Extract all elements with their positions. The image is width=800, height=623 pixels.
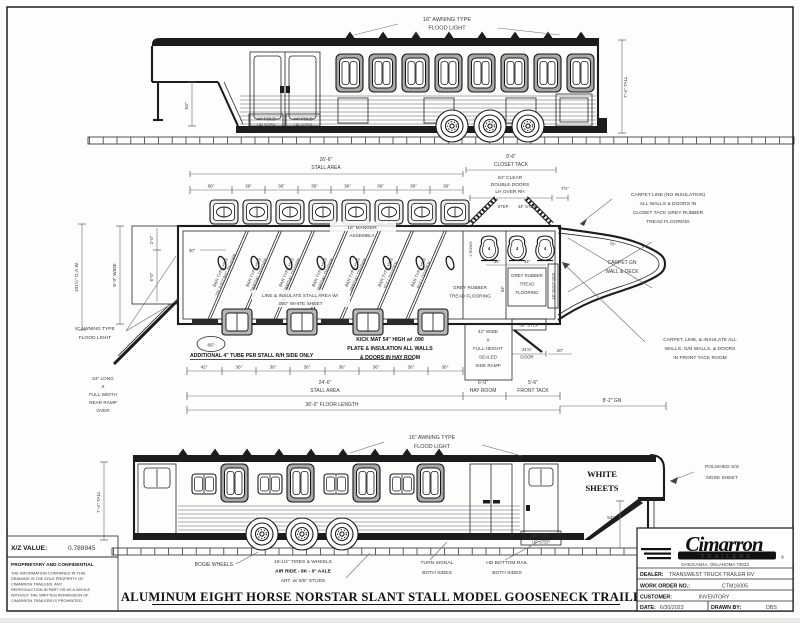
svg-text:36": 36" — [245, 184, 252, 189]
svg-text:36": 36" — [373, 365, 380, 370]
gn-drop-dim: 53" — [607, 515, 614, 520]
ramp-open-inner — [118, 304, 170, 356]
tires-note: 19-1/2" TIRES & WHEELS — [274, 559, 333, 565]
svg-text:.050" WHITE SHEET: .050" WHITE SHEET — [277, 301, 322, 307]
ramp-open — [114, 300, 178, 364]
svg-text:PLATE & INSULATION ALL WALLS: PLATE & INSULATION ALL WALLS — [347, 346, 433, 352]
svg-text:REPRODUCTION IN PART OR AS A W: REPRODUCTION IN PART OR AS A WHOLE — [11, 587, 91, 592]
wall-hatch — [321, 319, 349, 325]
svg-text:SEALED: SEALED — [479, 355, 498, 360]
svg-text:SIDE RAMP: SIDE RAMP — [475, 363, 500, 368]
svg-text:DRAWING IS THE SOLE PROPERTY O: DRAWING IS THE SOLE PROPERTY OF — [11, 576, 84, 581]
svg-text:DOOR: DOOR — [520, 355, 533, 360]
stall-windows-row — [336, 54, 594, 92]
floor-length-dim: 36'-0" FLOOR LENGTH — [305, 402, 358, 408]
stall-area-bottom-dim: 24'-6" — [319, 380, 332, 386]
svg-text:FLOORING: FLOORING — [516, 290, 540, 295]
svg-text:X: X — [101, 384, 105, 389]
svg-text:FLOOD LIGHT: FLOOD LIGHT — [79, 335, 112, 341]
svg-text:UP STEP: UP STEP — [294, 123, 313, 128]
rear-ramp-plan — [132, 226, 178, 304]
svg-text:TREAD FLOORING: TREAD FLOORING — [449, 294, 491, 299]
gn-entry-door — [524, 464, 558, 538]
divider-label-4: BAR TYPE H&S PARTIAL DIVIDER — [310, 255, 335, 292]
width-dim: 8'-0" WIDE — [112, 263, 118, 286]
stall-area-dim: 26'-6" — [320, 157, 333, 163]
svg-text:FULL HEIGHT: FULL HEIGHT — [473, 346, 503, 351]
rear-ramp-note: 53" LONG — [92, 376, 114, 381]
svg-text:ALL WALLS & DOORS IN: ALL WALLS & DOORS IN — [640, 201, 697, 207]
plan-view: 26'-6" STALL AREA 9'-6" CLOSET TACK 66" … — [73, 154, 737, 414]
kick-mat-note: KICK MAT 54" HIGH w/ .090 — [356, 337, 424, 343]
leader — [498, 28, 560, 35]
drawn-by-value: DBS — [766, 605, 777, 611]
svg-text:36": 36" — [236, 365, 243, 370]
divider-label-3: BAR TYPE H&S PARTIAL DIVIDER — [277, 255, 302, 292]
floor-band — [134, 533, 584, 540]
manger-row — [210, 200, 469, 224]
side-ramp-note: 42" WIDE — [478, 329, 498, 334]
svg-text:IN FRONT TACK ROOM: IN FRONT TACK ROOM — [673, 355, 727, 361]
door-dim: 31¾" — [522, 347, 533, 352]
svg-text:CLOSET TACK GREY RUBBER: CLOSET TACK GREY RUBBER — [633, 210, 704, 216]
wall-hatch — [387, 319, 414, 325]
xz-value-stamp: X/Z VALUE: 0.788945 — [7, 536, 118, 557]
carpet-closet-note: CARPET LINE (NO INSULATION) — [631, 192, 706, 198]
svg-text:36" FOLD: 36" FOLD — [532, 533, 550, 538]
divider-label-5: BAR TYPE H&S PARTIAL DIVIDER — [343, 255, 368, 292]
divider-label-7: BAR TYPE H&S FULL DIVIDER — [410, 257, 433, 290]
step-label: STEP — [498, 204, 509, 209]
svg-text:WALL & DECK: WALL & DECK — [605, 269, 639, 275]
date-label: DATE: — [640, 605, 656, 611]
svg-text:WITHOUT THE WRITTEN PERMISSION: WITHOUT THE WRITTEN PERMISSION OF — [11, 593, 89, 598]
clear-doors-note: 84" CLEAR — [498, 175, 523, 181]
svg-text:FLOOD LIGHT: FLOOD LIGHT — [414, 444, 451, 450]
svg-text:WALLS, G/N WALLS, & DOORS: WALLS, G/N WALLS, & DOORS — [665, 346, 737, 352]
brand-sub: TRAILERS — [701, 554, 753, 560]
trailer-body-side — [152, 32, 607, 143]
svg-text:36": 36" — [410, 184, 417, 189]
confidential-stamp: PROPRIETARY AND CONFIDENTIAL THE INFORMA… — [7, 557, 118, 611]
svg-text:36": 36" — [304, 365, 311, 370]
flood-light-label: 16" AWNING TYPE — [409, 435, 456, 441]
svg-text:36" STEP: 36" STEP — [519, 323, 538, 328]
step-44-label: 44" STEP — [518, 204, 536, 209]
gn-drop-dim: 53" — [184, 102, 190, 109]
dim-2ft: 2'-0" — [149, 235, 154, 244]
divider-label-6: BAR TYPE H&S FULL DIVIDER — [377, 257, 400, 290]
stall-area-label: STALL AREA — [311, 165, 341, 171]
work-order-value: CTM16005 — [722, 584, 748, 590]
svg-text:44" FOLD: 44" FOLD — [293, 117, 312, 122]
svg-text:36": 36" — [443, 184, 450, 189]
dim-34a: 34" — [494, 259, 501, 264]
entry-doors — [250, 52, 320, 126]
svg-text:36": 36" — [408, 365, 415, 370]
rear-compartment-inner — [560, 98, 588, 122]
flood-light-icons — [346, 32, 586, 39]
added-tube-note: ADDITIONAL 4" TUBE PER STALL R/H SIDE ON… — [190, 353, 314, 359]
closet-tack-label: CLOSET TACK — [494, 162, 529, 168]
top-side-view: 16" AWNING TYPE FLOOD LIGHT 53" 44" FOLD… — [88, 17, 794, 144]
triple-axle-wheels — [246, 518, 358, 550]
xz-label: X/Z VALUE: — [11, 545, 47, 552]
dealer-value: TRANSWEST TRUCK TRAILER RV — [669, 572, 755, 578]
dealer-label: DEALER: — [640, 572, 664, 578]
svg-text:36": 36" — [377, 184, 384, 189]
svg-text:42": 42" — [201, 365, 208, 370]
svg-text:STALL AREA: STALL AREA — [310, 388, 340, 394]
carpet-gn-note: CARPET GN — [607, 260, 636, 266]
stall-spacing-dims: 66" 36" 36" 36" 36" 36" 36" 36" — [190, 184, 463, 195]
flood-light-label: FLOOD LIGHT — [428, 26, 466, 32]
svg-text:ART. w/ 5/8" STUDS: ART. w/ 5/8" STUDS — [281, 578, 326, 584]
svg-text:36": 36" — [339, 365, 346, 370]
rear-door — [138, 464, 176, 538]
svg-text:66": 66" — [207, 343, 214, 349]
front-tack-dim: 5'-6" — [528, 380, 538, 386]
svg-text:REAR RAMP: REAR RAMP — [89, 400, 117, 405]
leader — [354, 24, 398, 35]
svg-text:36": 36" — [311, 184, 318, 189]
height-dim: 7'-4" TALL — [96, 491, 102, 513]
dim-30: 30" — [189, 248, 196, 253]
gooseneck-underside — [638, 497, 665, 501]
dim-18: 18" — [609, 240, 617, 247]
gn-length-dim: 8'-2" GN — [603, 398, 622, 404]
height-dim: 7'-4" TALL — [623, 76, 629, 98]
svg-text:ASSEMBLY: ASSEMBLY — [349, 233, 375, 239]
grey-rubber-hay: GREY RUBBER — [453, 285, 488, 290]
customer-value: INVENTORY — [699, 595, 730, 601]
nose-sheet-label: POLISHED S/S — [705, 464, 740, 470]
gooseneck-slope — [218, 82, 238, 126]
work-order-label: WORK ORDER NO.: — [640, 584, 690, 590]
svg-text:X: X — [486, 338, 489, 343]
svg-text:36": 36" — [278, 184, 285, 189]
access-panel — [338, 98, 368, 123]
closet-tack-dim: 9'-6" — [506, 154, 516, 160]
customer-label: CUSTOMER: — [640, 595, 672, 601]
svg-text:AIR RIDE - 8K - 0" AXLE: AIR RIDE - 8K - 0" AXLE — [275, 569, 331, 575]
dim-20: 20" — [557, 348, 564, 353]
divider-label-2: BAR TYPE H&S PARTIAL DIVIDER — [244, 255, 269, 292]
trailer-body-offside — [134, 449, 665, 551]
rows-label: 2 ROWS — [469, 241, 473, 256]
bottom-rail-label: HD BOTTOM RAIL — [486, 560, 528, 566]
date-value: 6/30/2023 — [660, 605, 684, 611]
bottom-spacing-dims: 42" 36" 36" 36" 36" 36" 36" 36" — [187, 365, 463, 376]
svg-text:TREAD: TREAD — [520, 282, 535, 287]
manger-label: 18" MANGER — [347, 225, 377, 231]
turn-signal-label: TURN SIGNAL — [421, 560, 454, 566]
svg-text:44" FOLD: 44" FOLD — [256, 117, 275, 122]
svg-text:BOTH SIDES: BOTH SIDES — [422, 570, 452, 576]
svg-text:LH OVER RH: LH OVER RH — [495, 189, 525, 195]
dim-54: 54" — [500, 285, 505, 292]
drawn-by-label: DRAWN BY: — [711, 605, 741, 611]
svg-text:66": 66" — [208, 184, 215, 189]
awning8-label: 8" AWNING TYPE — [75, 326, 115, 332]
svg-text:NOSE SHEET: NOSE SHEET — [706, 475, 738, 481]
svg-text:TREAD FLOORING: TREAD FLOORING — [646, 219, 690, 225]
drawing-sheet: 16" AWNING TYPE FLOOD LIGHT 53" 44" FOLD… — [0, 0, 800, 618]
dim-7half: 7½" — [561, 185, 569, 191]
title-block: Cimarron TRAILERS ® CHICKASHA, OKLAHOMA … — [637, 528, 793, 611]
svg-text:CIMARRON TRAILERS IS PROHIBITE: CIMARRON TRAILERS IS PROHIBITED. — [11, 598, 83, 603]
dim-34b: 34" — [524, 259, 531, 264]
sheet-border — [7, 7, 793, 611]
svg-text:FRONT TACK: FRONT TACK — [517, 388, 549, 394]
svg-text:36": 36" — [270, 365, 277, 370]
wall-hatch — [256, 319, 283, 325]
white-sheets-label: WHITE — [587, 469, 617, 479]
rear-bumper — [598, 118, 607, 133]
hay-room-dim: 6'-0" — [478, 380, 488, 386]
flood-light-label: 16" AWNING TYPE — [423, 17, 472, 23]
hay-door — [470, 464, 512, 538]
svg-text:CIMARRON TRAILERS. ANY: CIMARRON TRAILERS. ANY — [11, 582, 63, 587]
flood-light-icons — [179, 449, 444, 456]
svg-text:DOUBLE DOORS: DOUBLE DOORS — [491, 182, 530, 188]
white-sheets-label: SHEETS — [585, 483, 618, 493]
svg-text:GREY RUBBER: GREY RUBBER — [511, 273, 543, 278]
wall-hatch — [192, 319, 218, 325]
svg-text:UP STEP: UP STEP — [257, 123, 276, 128]
carpet-front-note: CARPET, LINE, & INSULATE ALL — [663, 337, 737, 343]
body-inner-wall — [183, 231, 555, 319]
dim-6ft: 6'-0" — [149, 272, 154, 281]
svg-text:& DOORS IN HAY ROOM: & DOORS IN HAY ROOM — [360, 355, 420, 361]
svg-text:HAY ROOM: HAY ROOM — [470, 388, 497, 394]
rear-compartment-door — [556, 94, 592, 126]
roof-band — [134, 455, 656, 462]
bogie-label: BOGIE WHEELS — [195, 562, 234, 568]
svg-text:36": 36" — [442, 365, 449, 370]
stall-windows-row — [192, 464, 444, 502]
brand-address: CHICKASHA, OKLAHOMA 73023 — [681, 562, 749, 567]
svg-text:OVER: OVER — [96, 408, 110, 413]
triple-axle-wheels — [436, 110, 544, 142]
svg-text:18" BOOT BOX: 18" BOOT BOX — [551, 272, 556, 299]
drawing-title: ALUMINUM EIGHT HORSE NORSTAR SLANT STALL… — [121, 590, 652, 604]
svg-text:FULL WIDTH: FULL WIDTH — [89, 392, 117, 397]
trailer-drawing: 16" AWNING TYPE FLOOD LIGHT 53" 44" FOLD… — [0, 0, 800, 618]
xz-value: 0.788945 — [68, 545, 96, 552]
roof-band — [152, 38, 598, 46]
confidential-title: PROPRIETARY AND CONFIDENTIAL — [11, 562, 94, 568]
oaw-dim: 101½" O.A.W. — [73, 262, 80, 292]
svg-text:36": 36" — [344, 184, 351, 189]
svg-text:THE INFORMATION CONTAINED IN T: THE INFORMATION CONTAINED IN THIS — [11, 571, 86, 576]
svg-text:BOTH SIDES: BOTH SIDES — [492, 570, 522, 576]
line-insulate-note: LINE & INSULATE STALL AREA W/ — [262, 293, 339, 299]
